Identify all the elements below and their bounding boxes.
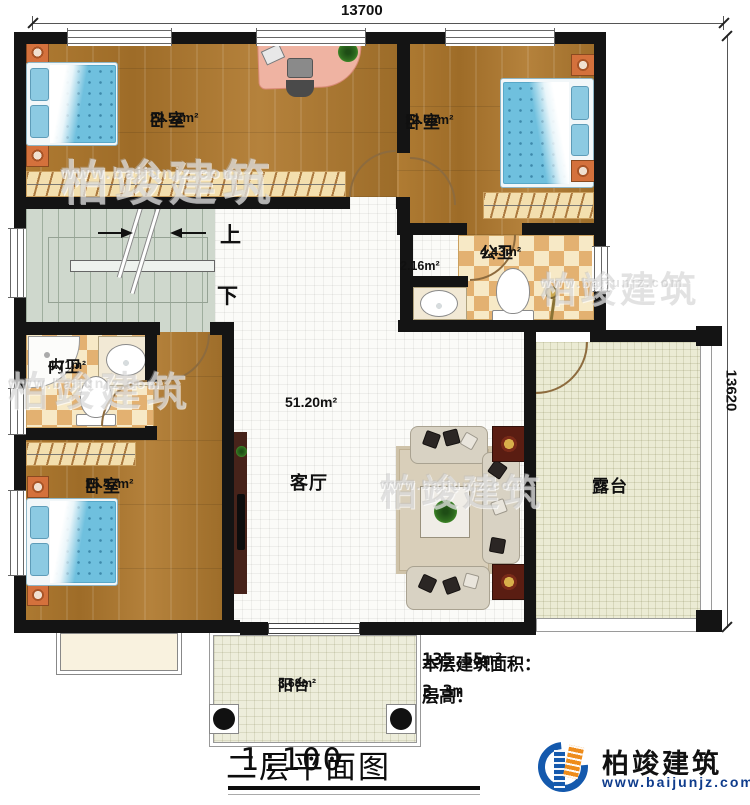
window [8, 228, 26, 298]
shower-head-icon [545, 286, 558, 299]
tv-icon [237, 494, 245, 550]
room-name: 露台 [592, 476, 628, 498]
plan-title: 二层平面图 1:100 [226, 742, 343, 778]
wall [145, 334, 157, 382]
title-underline [228, 786, 480, 790]
stair-arrow-icon [170, 228, 182, 238]
window [256, 28, 366, 46]
pillow [30, 105, 49, 138]
column [696, 326, 722, 346]
floor-height-label: 层高： [422, 682, 473, 707]
dimension-line [32, 23, 724, 24]
plant-icon [236, 446, 247, 457]
window [592, 246, 610, 292]
washbasin [420, 290, 458, 317]
company-website: www.baijunjz.com [602, 774, 750, 790]
bed-sheet [50, 501, 116, 583]
stair-arrow-line [98, 232, 122, 234]
stairs-down-label: 下 [217, 280, 238, 310]
pillow [30, 68, 49, 101]
room-area: 22.52m² [150, 110, 198, 127]
end-table [492, 564, 526, 600]
wardrobe [26, 171, 346, 197]
room-area: 15.47m² [85, 476, 133, 493]
window [8, 490, 26, 576]
pillow [30, 506, 49, 539]
wall [14, 620, 240, 633]
pillow [571, 124, 589, 156]
stair-arrow-icon [121, 228, 133, 238]
nightstand [27, 584, 49, 606]
wall [240, 622, 268, 635]
dimension-top: 13700 [341, 2, 383, 19]
round-column [386, 704, 416, 734]
terrace-railing-right [700, 342, 712, 632]
bay-window [60, 633, 178, 671]
wall [524, 330, 536, 635]
room-area: 4.43m² [480, 244, 521, 261]
floor-area-label: 本层建筑面积： [422, 650, 541, 675]
title-underline-thin [228, 794, 480, 795]
column [696, 610, 722, 632]
end-table [492, 426, 526, 462]
room-area: 2.16m² [400, 258, 440, 274]
wall [590, 330, 700, 342]
nightstand [27, 476, 49, 498]
nightstand [26, 42, 49, 63]
wall [14, 197, 350, 209]
plan-title-text: 二层平面图 [226, 742, 391, 787]
terrace-railing-bottom [536, 618, 712, 632]
floor-plan: 卧室 22.52m² 卧室 12.66m² 公卫 4.43m² 2.16m² 内… [0, 0, 750, 805]
wall [400, 276, 468, 287]
wardrobe [483, 192, 594, 219]
room-area: 3.68m² [278, 676, 316, 692]
stairs-up-label: 上 [220, 219, 241, 249]
room-area: 4.71m² [48, 358, 86, 374]
wardrobe [26, 442, 136, 466]
sofa-cushion [489, 537, 506, 554]
wall [397, 223, 467, 235]
dimension-line [727, 36, 728, 628]
company-logo-icon [538, 738, 596, 798]
wall [14, 428, 157, 440]
room-area: 51.20m² [285, 393, 337, 411]
dimension-right: 13620 [722, 370, 739, 412]
nightstand [571, 54, 595, 76]
room-area: 12.66m² [405, 112, 453, 129]
nightstand [571, 160, 595, 182]
pillow [30, 543, 49, 576]
bed-sheet [503, 82, 569, 184]
pillow [571, 86, 589, 120]
toilet [496, 268, 530, 314]
sliding-door [268, 623, 360, 634]
wall [397, 44, 410, 153]
room-name: 客厅 [290, 472, 328, 495]
wall [360, 622, 524, 635]
washbasin [106, 344, 146, 376]
bed-sheet [50, 65, 116, 143]
round-column [209, 704, 239, 734]
window [67, 28, 172, 46]
stair-arrow-line [182, 232, 206, 234]
desk-chair [286, 80, 314, 97]
wall [222, 334, 234, 622]
nightstand [26, 144, 49, 167]
floor-height-note: 层高：3.3m [422, 682, 463, 702]
wall [26, 322, 160, 335]
computer-monitor [287, 58, 313, 78]
floor-area-note: 本层建筑面积：135.55m² [422, 650, 504, 670]
window [445, 28, 555, 46]
plant-icon [434, 500, 457, 523]
window [8, 388, 26, 435]
wall [522, 223, 606, 235]
wall [398, 320, 606, 332]
